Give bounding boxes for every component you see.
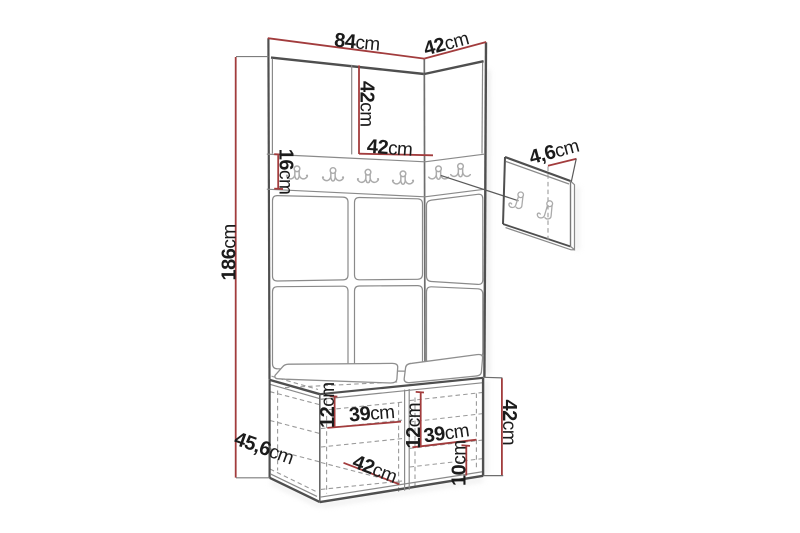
- svg-text:12cm: 12cm: [317, 382, 339, 428]
- svg-text:186cm: 186cm: [218, 224, 240, 280]
- svg-text:16cm: 16cm: [275, 149, 297, 195]
- svg-text:84cm: 84cm: [333, 29, 380, 55]
- svg-text:42cm: 42cm: [356, 81, 378, 127]
- svg-text:42cm: 42cm: [498, 400, 520, 446]
- svg-text:42cm: 42cm: [366, 136, 413, 161]
- svg-text:10cm: 10cm: [449, 440, 471, 486]
- svg-text:39cm: 39cm: [348, 401, 395, 427]
